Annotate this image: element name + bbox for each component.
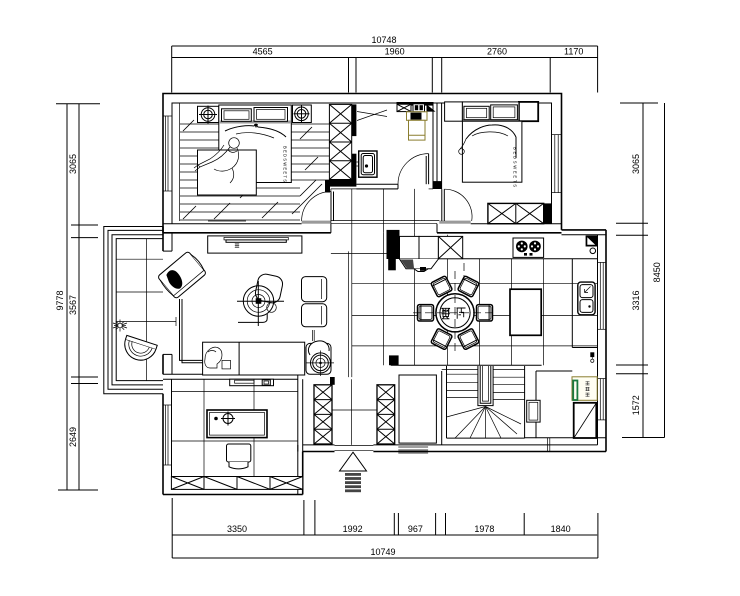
svg-text:1840: 1840	[551, 524, 571, 534]
svg-text:3567: 3567	[68, 295, 78, 315]
svg-text:1170: 1170	[564, 47, 583, 57]
svg-text:8450: 8450	[652, 262, 662, 282]
svg-text:BEDSWEETS: BEDSWEETS	[283, 146, 288, 182]
svg-text:9778: 9778	[55, 290, 65, 310]
svg-text:10748: 10748	[371, 35, 396, 45]
svg-text:4565: 4565	[253, 47, 273, 57]
svg-text:3316: 3316	[631, 290, 641, 310]
svg-text:1572: 1572	[631, 395, 641, 415]
svg-text:1960: 1960	[385, 47, 405, 57]
svg-text:10749: 10749	[370, 547, 395, 557]
svg-text:2760: 2760	[487, 47, 507, 57]
svg-text:1978: 1978	[474, 524, 494, 534]
svg-text:BEDSWEETS: BEDSWEETS	[513, 147, 518, 187]
svg-text:967: 967	[408, 524, 423, 534]
svg-text:1992: 1992	[343, 524, 363, 534]
svg-text:3350: 3350	[227, 524, 247, 534]
svg-text:3065: 3065	[68, 154, 78, 174]
svg-text:2649: 2649	[68, 427, 78, 447]
svg-text:3065: 3065	[631, 154, 641, 174]
